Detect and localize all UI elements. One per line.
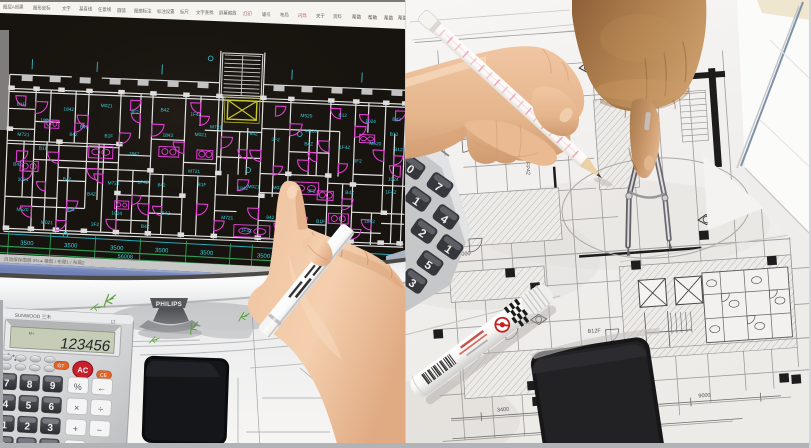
svg-text:打印: 打印 — [243, 10, 252, 17]
svg-text:1024: 1024 — [111, 211, 122, 217]
svg-text:闪烁: 闪烁 — [298, 12, 307, 18]
svg-text:3500: 3500 — [257, 253, 271, 260]
svg-text:1842: 1842 — [162, 133, 173, 139]
svg-text:标注设置: 标注设置 — [157, 8, 175, 15]
svg-text:842: 842 — [157, 182, 166, 188]
svg-text:B12: B12 — [390, 132, 399, 138]
svg-text:1F4Z: 1F4Z — [385, 190, 396, 196]
svg-text:842: 842 — [266, 215, 275, 221]
svg-text:输号: 输号 — [262, 11, 271, 18]
svg-text:3500: 3500 — [200, 250, 214, 257]
svg-text:12: 12 — [110, 319, 116, 324]
svg-text:2: 2 — [24, 421, 31, 432]
svg-text:M721: M721 — [210, 124, 223, 130]
svg-text:B1F: B1F — [316, 219, 325, 225]
svg-text:M520: M520 — [300, 113, 313, 119]
svg-text:1842: 1842 — [63, 107, 74, 113]
svg-text:PHILIPS: PHILIPS — [156, 301, 182, 308]
svg-text:B4Z: B4Z — [345, 190, 354, 196]
svg-text:5: 5 — [25, 400, 32, 411]
svg-text:B4Z: B4Z — [87, 192, 96, 198]
svg-text:M520: M520 — [16, 207, 29, 213]
svg-text:M021: M021 — [247, 184, 260, 190]
svg-text:842: 842 — [69, 132, 78, 138]
svg-text:+: + — [73, 424, 79, 434]
svg-text:3F2: 3F2 — [130, 109, 139, 115]
svg-text:圆弧: 圆弧 — [117, 7, 126, 14]
svg-text:1024: 1024 — [388, 177, 399, 183]
svg-text:1F4Z: 1F4Z — [190, 112, 201, 118]
svg-text:关于: 关于 — [316, 12, 325, 19]
svg-text:×: × — [74, 403, 80, 413]
svg-text:4: 4 — [2, 399, 9, 410]
svg-text:帮助: 帮助 — [352, 13, 362, 20]
svg-text:CE: CE — [100, 373, 108, 379]
svg-text:842: 842 — [250, 131, 259, 137]
svg-text:布局: 布局 — [280, 11, 289, 18]
svg-text:帮助: 帮助 — [368, 14, 378, 21]
svg-text:M721: M721 — [107, 180, 120, 186]
svg-text:3: 3 — [47, 423, 54, 434]
svg-text:3F2: 3F2 — [271, 137, 280, 143]
svg-text:3500: 3500 — [110, 245, 124, 252]
svg-text:M721: M721 — [188, 169, 201, 175]
svg-text:GT: GT — [57, 363, 64, 369]
svg-text:B12: B12 — [338, 113, 347, 119]
svg-text:基直线: 基直线 — [79, 6, 93, 12]
svg-text:B42: B42 — [161, 211, 170, 217]
svg-text:6: 6 — [48, 402, 55, 413]
svg-text:÷: ÷ — [98, 404, 104, 414]
svg-text:标尺: 标尺 — [180, 9, 189, 16]
svg-text:3500: 3500 — [20, 241, 34, 248]
svg-text:1842: 1842 — [364, 219, 375, 225]
svg-text:1842: 1842 — [129, 151, 140, 157]
svg-text:B12F: B12F — [587, 328, 601, 335]
svg-text:图形坐标: 图形坐标 — [33, 4, 51, 11]
svg-text:B1F: B1F — [197, 182, 206, 188]
svg-text:7: 7 — [3, 378, 10, 389]
svg-text:8: 8 — [26, 380, 33, 391]
svg-text:M+: M+ — [29, 331, 36, 336]
svg-text:B1F: B1F — [17, 102, 26, 108]
svg-text:图层A创建: 图层A创建 — [3, 4, 24, 11]
svg-text:M021: M021 — [41, 220, 54, 226]
svg-text:AC: AC — [77, 365, 89, 375]
svg-text:1F4Z: 1F4Z — [241, 228, 252, 234]
svg-text:B12: B12 — [66, 207, 75, 213]
svg-text:3F2: 3F2 — [307, 188, 316, 194]
svg-text:M721: M721 — [221, 215, 234, 221]
svg-text:B1F: B1F — [39, 146, 48, 152]
svg-text:文字: 文字 — [62, 5, 71, 12]
svg-text:B4Z: B4Z — [141, 224, 150, 230]
svg-text:9000: 9000 — [698, 393, 711, 400]
svg-text:←: ← — [97, 383, 107, 393]
svg-text:1024: 1024 — [40, 118, 51, 124]
svg-text:M520: M520 — [305, 128, 318, 134]
svg-text:屏幕缩放: 屏幕缩放 — [219, 10, 237, 17]
svg-text:B1F: B1F — [104, 133, 113, 139]
svg-text:帮助: 帮助 — [384, 14, 394, 21]
svg-text:3500: 3500 — [155, 248, 169, 255]
svg-text:M721: M721 — [17, 132, 30, 138]
svg-text:1024: 1024 — [365, 119, 376, 125]
svg-text:M021: M021 — [194, 132, 207, 138]
svg-text:B42: B42 — [80, 124, 89, 130]
svg-text:B4Z: B4Z — [304, 141, 313, 147]
svg-text:3500: 3500 — [64, 243, 78, 250]
svg-text:M021: M021 — [101, 103, 114, 109]
svg-text:文字查找: 文字查找 — [196, 9, 214, 16]
svg-text:B42: B42 — [13, 162, 22, 168]
svg-text:1F4Z: 1F4Z — [339, 145, 350, 151]
svg-text:3400: 3400 — [497, 407, 510, 414]
svg-text:3F2: 3F2 — [91, 222, 100, 228]
svg-text:−: − — [97, 425, 103, 435]
svg-text:B42: B42 — [392, 117, 401, 123]
svg-text:3F2: 3F2 — [354, 158, 363, 164]
svg-text:任意线: 任意线 — [98, 6, 112, 13]
svg-text:图廓标注: 图廓标注 — [134, 7, 152, 14]
svg-text:1024: 1024 — [17, 177, 28, 183]
svg-text:B42: B42 — [63, 177, 72, 183]
svg-text:123456: 123456 — [59, 335, 112, 355]
svg-text:资料: 资料 — [333, 13, 342, 20]
svg-text:9: 9 — [49, 381, 56, 392]
svg-text:1F4Z: 1F4Z — [137, 180, 148, 186]
svg-text:B12: B12 — [394, 147, 403, 153]
svg-text:%: % — [74, 382, 83, 392]
svg-text:M520: M520 — [369, 141, 382, 147]
svg-text:B4Z: B4Z — [160, 107, 169, 113]
